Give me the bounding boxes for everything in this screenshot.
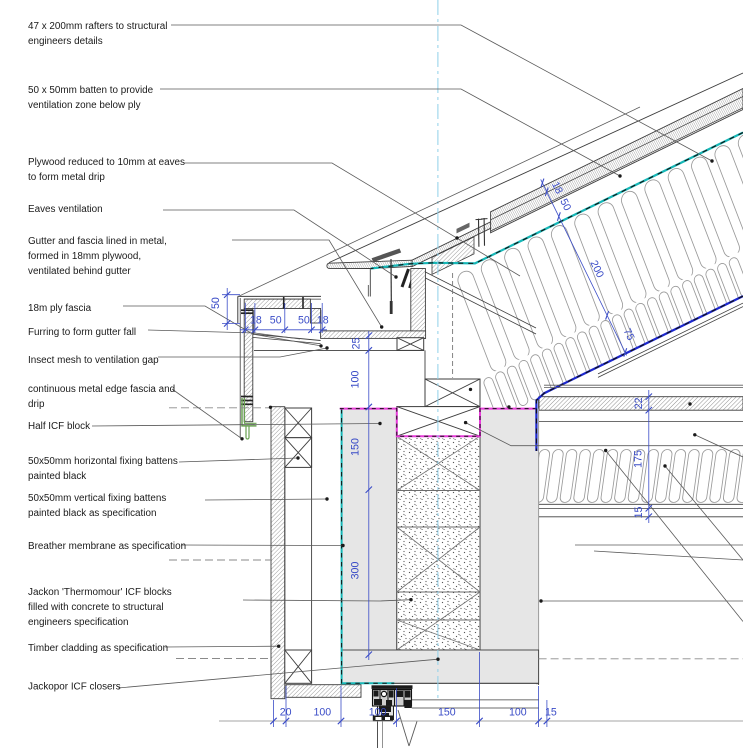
svg-text:18: 18 [317,315,329,327]
svg-text:ventilated behind gutter: ventilated behind gutter [28,266,131,277]
svg-text:continuous metal edge fascia a: continuous metal edge fascia and [28,384,175,395]
svg-text:painted black as specification: painted black as specification [28,508,156,519]
svg-text:15: 15 [545,707,557,719]
svg-text:to form metal drip: to form metal drip [28,172,105,183]
svg-text:Eaves ventilation: Eaves ventilation [28,204,103,215]
svg-text:175: 175 [633,450,645,468]
svg-text:100: 100 [369,707,387,719]
svg-text:150: 150 [438,707,456,719]
svg-text:100: 100 [509,707,527,719]
svg-text:18: 18 [250,315,262,327]
svg-text:drip: drip [28,399,45,410]
svg-text:100: 100 [314,707,332,719]
svg-text:50: 50 [270,315,282,327]
svg-text:engineers details: engineers details [28,36,103,47]
svg-text:50x50mm horizontal fixing batt: 50x50mm horizontal fixing battens [28,456,178,467]
svg-text:47 x 200mm rafters to structur: 47 x 200mm rafters to structural [28,21,167,32]
svg-text:Timber cladding as specificati: Timber cladding as specification [28,643,168,654]
svg-text:150: 150 [350,438,362,456]
svg-text:engineers specification: engineers specification [28,617,128,628]
svg-text:100: 100 [350,371,362,389]
svg-text:formed in 18mm plywood,: formed in 18mm plywood, [28,251,141,262]
svg-text:50: 50 [298,315,310,327]
svg-text:filled with concrete to struct: filled with concrete to structural [28,602,164,613]
svg-text:ventilation zone below ply: ventilation zone below ply [28,100,141,111]
svg-text:25: 25 [351,338,363,350]
svg-text:18m ply fascia: 18m ply fascia [28,303,92,314]
svg-text:Jackon 'Thermomour' ICF blocks: Jackon 'Thermomour' ICF blocks [28,587,172,598]
svg-text:Plywood reduced to 10mm at eav: Plywood reduced to 10mm at eaves [28,157,185,168]
svg-text:Insect mesh to ventilation gap: Insect mesh to ventilation gap [28,355,159,366]
svg-text:50: 50 [210,297,222,309]
svg-text:Gutter and fascia lined in met: Gutter and fascia lined in metal, [28,236,167,247]
svg-text:20: 20 [280,707,292,719]
svg-text:Breather membrane as specifica: Breather membrane as specification [28,541,186,552]
svg-text:Jackopor ICF closers: Jackopor ICF closers [28,682,121,693]
svg-text:Half ICF block: Half ICF block [28,421,90,432]
svg-text:300: 300 [350,562,362,580]
svg-text:50x50mm vertical fixing batten: 50x50mm vertical fixing battens [28,493,166,504]
svg-text:22: 22 [633,397,645,409]
svg-text:50 x 50mm batten to provide: 50 x 50mm batten to provide [28,85,154,96]
svg-text:Furring to form gutter fall: Furring to form gutter fall [28,327,136,338]
svg-text:15: 15 [633,507,645,519]
svg-text:painted black: painted black [28,471,86,482]
